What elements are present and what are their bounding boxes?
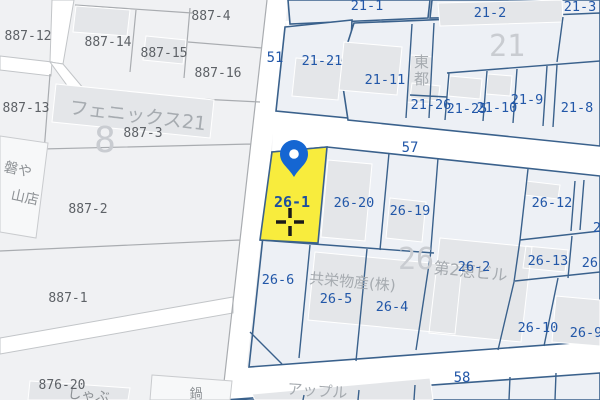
building-label-nabe: 鍋 xyxy=(189,386,202,400)
lot-label-26-13: 26-13 xyxy=(528,253,569,269)
lot-label-21-8: 21-8 xyxy=(561,100,594,116)
lot-label-887-15: 887-15 xyxy=(141,46,188,61)
lot-label-887-16: 887-16 xyxy=(195,66,242,81)
lot-label-26-6: 26-6 xyxy=(262,272,295,288)
block-number-21: 21 xyxy=(489,29,525,64)
lot-label-21-3: 21-3 xyxy=(564,0,597,15)
lot-label-21-1: 21-1 xyxy=(351,0,384,14)
lot-label-21-9: 21-9 xyxy=(511,92,544,108)
lot-label-26-12: 26-12 xyxy=(532,195,573,211)
cadastral-map[interactable]: 8 21 26 フェニックス21 東都 共栄物産(株) 第2恵ビル アップル 磐… xyxy=(0,0,600,400)
building-label-todo: 東都 xyxy=(412,54,430,88)
lot-label-26-19: 26-19 xyxy=(390,203,431,219)
lot-label-26-10: 26-10 xyxy=(518,320,559,336)
building-label-apple: アップル xyxy=(287,380,348,400)
lot-label-887-13: 887-13 xyxy=(3,101,50,116)
lot-label-partial-26: 26- xyxy=(582,255,600,271)
lot-label-26-9: 26-9 xyxy=(570,325,600,341)
lot-label-887-1: 887-1 xyxy=(48,291,87,306)
map-pin-hole xyxy=(289,149,299,159)
lot-label-26-20: 26-20 xyxy=(334,195,375,211)
road-number-58: 58 xyxy=(454,370,471,386)
lot-label-21-21: 21-21 xyxy=(302,53,343,69)
lot-label-887-2: 887-2 xyxy=(68,202,107,217)
lot-label-26-5: 26-5 xyxy=(320,291,353,307)
lot-label-887-12: 887-12 xyxy=(5,29,52,44)
lot-label-26-2: 26-2 xyxy=(458,259,491,275)
lot-label-26-1: 26-1 xyxy=(274,193,310,211)
lot-label-21-11: 21-11 xyxy=(365,72,406,88)
lot-label-26-4: 26-4 xyxy=(376,299,409,315)
road-number-57: 57 xyxy=(402,140,419,156)
lot-label-21-2: 21-2 xyxy=(474,5,507,21)
lot-label-887-14: 887-14 xyxy=(85,35,132,50)
lot-label-21-26: 21-26 xyxy=(411,97,452,113)
map-canvas[interactable]: 8 21 26 フェニックス21 東都 共栄物産(株) 第2恵ビル アップル 磐… xyxy=(0,0,600,400)
lot-label-876-20: 876-20 xyxy=(39,378,86,393)
lot-label-887-4: 887-4 xyxy=(191,9,230,24)
lot-label-partial-2: 2 xyxy=(593,220,600,236)
road-number-51: 51 xyxy=(267,50,284,66)
block-number-8: 8 xyxy=(94,120,116,161)
block-number-26: 26 xyxy=(398,242,434,277)
lot-label-887-3: 887-3 xyxy=(123,126,162,141)
